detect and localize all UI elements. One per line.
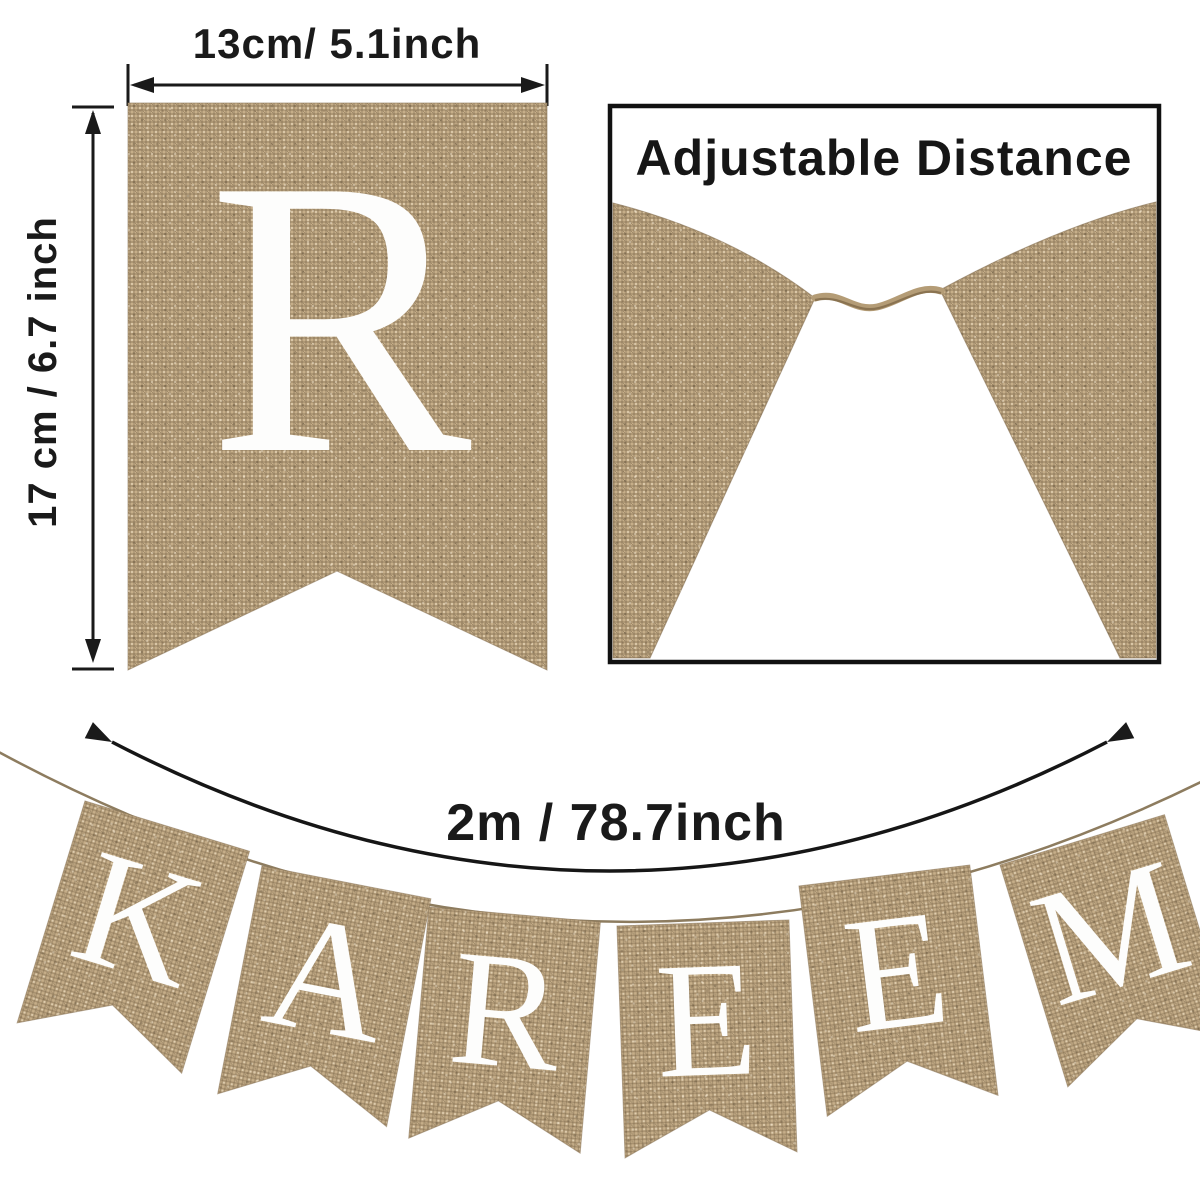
pennant-flag-large: R	[128, 99, 547, 670]
pennant-letter: E	[653, 926, 760, 1112]
product-dimension-figure: 13cm/ 5.1inch 17 cm / 6.7 inch R Adjusta…	[0, 0, 1200, 1200]
panel-title: Adjustable Distance	[636, 130, 1133, 186]
length-label: 2m / 78.7inch	[446, 794, 786, 852]
pennant-k: K	[17, 801, 249, 1073]
screenshot-root: 13cm/ 5.1inch 17 cm / 6.7 inch R Adjusta…	[0, 0, 1200, 1200]
height-dimension-label: 17 cm / 6.7 inch	[21, 216, 65, 528]
width-dimension-label: 13cm/ 5.1inch	[193, 20, 481, 67]
pennant-a: A	[218, 866, 431, 1127]
pennant-letter: R	[443, 915, 569, 1107]
pennant-r: R	[409, 907, 601, 1153]
adjustable-distance-panel: Adjustable Distance	[610, 106, 1159, 662]
pennant-m: M	[1000, 815, 1200, 1087]
pennant-letter-large: R	[208, 99, 473, 536]
single-pennant-figure: 13cm/ 5.1inch 17 cm / 6.7 inch R	[21, 20, 547, 670]
banner-figure: 2m / 78.7inch K A R E E	[0, 722, 1200, 1158]
pennant-e2: E	[799, 865, 998, 1116]
height-dimension-arrow	[72, 107, 114, 669]
pennant-e1: E	[617, 920, 797, 1158]
